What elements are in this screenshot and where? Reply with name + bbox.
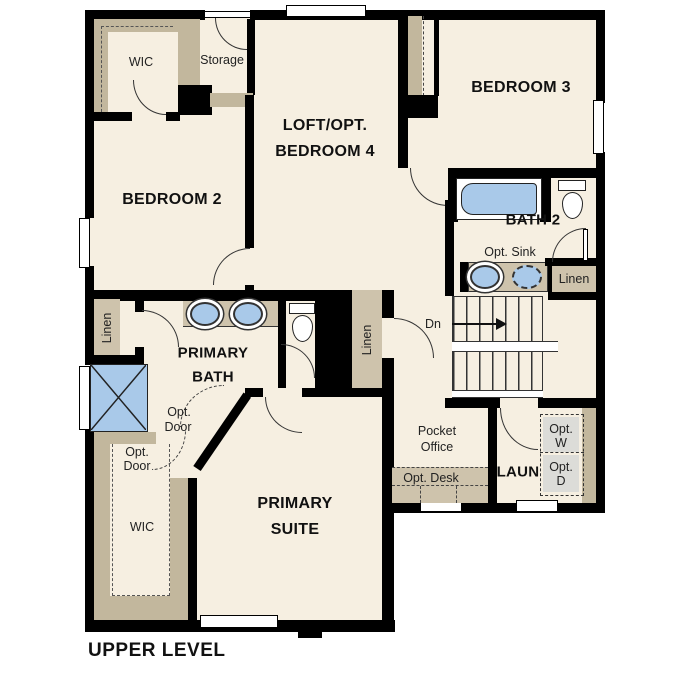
room-label-primarybath-2: BATH — [192, 369, 234, 386]
room-label-laundry: LAUN — [497, 464, 540, 481]
stairs-arrow-icon — [496, 318, 507, 330]
wall-bath2-top — [448, 168, 596, 178]
wall-wic-bottom-1 — [85, 112, 132, 121]
stairs-lower-run — [452, 352, 543, 390]
room-label-loft-2: BEDROOM 4 — [275, 143, 375, 161]
washer-dryer-divider — [540, 452, 584, 453]
wall-bedroom3-closet-block — [398, 95, 438, 118]
wall-bedroom2-right-1 — [245, 95, 254, 248]
wall-storage-right — [247, 19, 255, 95]
room-label-bath2: BATH 2 — [506, 212, 561, 229]
wall-left-2 — [85, 266, 94, 365]
window-loft — [286, 5, 366, 17]
window-shower — [79, 366, 90, 430]
stairs-arrow-line — [452, 323, 498, 325]
wall-bath-entry-1 — [135, 290, 144, 312]
label-opt-washer-2: W — [555, 436, 567, 450]
bedroom3-closet-partition — [434, 16, 439, 96]
sink-primary-2 — [233, 302, 263, 326]
opt-desk-dash-mid — [392, 485, 488, 486]
label-opt-door2-1: Opt. — [125, 445, 149, 459]
wall-understairs-2 — [538, 398, 600, 408]
primary-wic-shelf-top — [94, 432, 156, 444]
room-label-primarysuite-1: PRIMARY — [257, 495, 332, 513]
room-label-primarysuite-2: SUITE — [271, 521, 320, 539]
wall-center-block — [315, 290, 352, 390]
room-label-bedroom2: BEDROOM 2 — [122, 191, 222, 209]
bedroom3-closet-rod-dashed — [423, 16, 424, 96]
wall-bottom-jog — [298, 620, 322, 638]
shower-x-icon — [91, 365, 146, 430]
window-bedroom3 — [593, 100, 604, 154]
label-linen-bath2: Linen — [559, 272, 590, 286]
sink-bath2 — [470, 265, 500, 289]
label-stairs-dn: Dn — [425, 317, 441, 331]
wall-wic-block — [178, 85, 212, 115]
label-linen-center: Linen — [360, 325, 374, 356]
room-label-loft-1: LOFT/OPT. — [283, 117, 367, 135]
toilet-tank-bath2 — [558, 180, 586, 191]
room-label-wic-top: WIC — [129, 55, 153, 69]
room-label-bedroom3: BEDROOM 3 — [471, 79, 571, 97]
room-label-pocketoffice-2: Office — [421, 440, 453, 454]
sink-primary-1 — [190, 302, 220, 326]
primary-wic-shelf-right — [170, 478, 188, 600]
door-leaf-storage — [204, 11, 251, 18]
label-opt-sink: Opt. Sink — [484, 245, 535, 259]
stairs-bottom-rail — [452, 390, 543, 398]
label-opt-door2-2: Door — [123, 459, 150, 473]
page-title: UPPER LEVEL — [88, 640, 225, 662]
toilet-tank-primary — [289, 303, 315, 314]
room-label-storage: Storage — [200, 53, 244, 67]
label-opt-washer-1: Opt. — [549, 422, 573, 436]
opt-desk-dash-2 — [456, 486, 457, 503]
laundry-shelf-right — [582, 408, 596, 503]
stairs-rail — [452, 341, 558, 352]
bedroom3-closet-shelf — [408, 16, 422, 96]
window-primary-suite — [200, 615, 278, 628]
primary-wic-shelf-left — [94, 432, 110, 620]
wall-suite-top-2 — [302, 388, 394, 397]
label-linen-left: Linen — [100, 313, 114, 344]
wall-hall-west-1 — [382, 290, 394, 318]
label-opt-desk: Opt. Desk — [403, 471, 459, 485]
window-laundry — [516, 500, 558, 512]
floor-plan: WIC Storage BEDROOM 2 LOFT/OPT. BEDROOM … — [0, 0, 687, 687]
wall-wic-bottom-2 — [166, 112, 180, 121]
room-label-primarybath-1: PRIMARY — [178, 345, 249, 362]
wall-right-1 — [596, 10, 605, 103]
shower — [90, 364, 148, 432]
label-opt-door1-1: Opt. — [167, 405, 191, 419]
sink-bath2-optional — [512, 265, 542, 289]
wall-office-laundry — [488, 408, 497, 505]
wall-shower-top — [94, 355, 144, 364]
wall-loft-bedroom3 — [398, 10, 408, 168]
wall-understairs-1 — [445, 398, 500, 408]
bathtub — [461, 183, 537, 215]
wall-linen-bath2-bottom — [548, 292, 600, 300]
wall-right-2 — [596, 152, 605, 512]
room-label-pocketoffice-1: Pocket — [418, 424, 456, 438]
opt-desk-dash-1 — [420, 486, 421, 503]
label-opt-dryer-1: Opt. — [549, 460, 573, 474]
wic-storage-divider — [178, 19, 200, 85]
label-opt-dryer-2: D — [556, 474, 565, 488]
wall-wic-suite — [188, 478, 197, 632]
wall-left-3 — [85, 430, 94, 632]
room-label-wic-primary: WIC — [130, 520, 154, 534]
window-bedroom2 — [79, 218, 90, 268]
wall-hall-stairs — [445, 200, 454, 296]
